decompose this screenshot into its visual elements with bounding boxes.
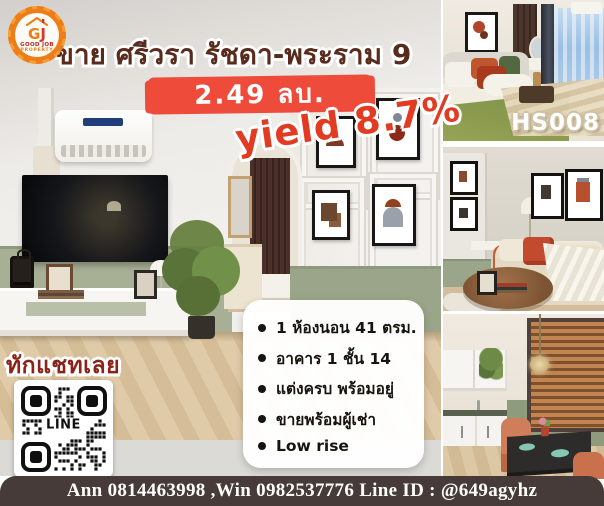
plate: [519, 443, 535, 451]
lantern-handle: [17, 249, 31, 259]
picture-frame: [465, 12, 498, 53]
badge-initials: GJ: [28, 27, 46, 42]
feature-item: แต่งครบ พร้อมอยู่: [258, 376, 416, 401]
badge-initial-j: J: [40, 25, 46, 43]
feature-item: 1 ห้องนอน 41 ตรม.: [258, 315, 416, 340]
abstract-art: [459, 171, 467, 182]
ac-display: [83, 118, 123, 126]
cabinet-handle: [461, 426, 463, 438]
brand-badge: GJ GOOD JOB PROPERTY: [8, 6, 66, 64]
feature-item: Low rise: [258, 437, 416, 455]
pendant-light: [530, 356, 549, 373]
bullet-icon: [258, 354, 266, 362]
bullet-icon: [258, 415, 266, 423]
line-logo-label: LINE: [44, 417, 83, 432]
feature-text: อาคาร 1 ชั้น 14: [276, 346, 391, 371]
plant-pot: [188, 316, 215, 339]
bullet-icon: [258, 442, 266, 450]
hanging-plant: [479, 348, 503, 384]
lamp-reflection: [107, 201, 121, 211]
faucet: [477, 400, 480, 410]
plate: [551, 449, 569, 458]
abstract-art: [473, 21, 485, 33]
television: [22, 175, 168, 262]
console-shelf-gap: [26, 302, 146, 316]
picture-frame: [450, 197, 478, 231]
book-stack: [38, 290, 84, 299]
feature-item: ขายพร้อมผู้เช่า: [258, 407, 416, 432]
bullet-icon: [258, 385, 266, 393]
chat-cta: ทักแชทเลย: [6, 348, 120, 384]
picture-frame: [312, 190, 350, 240]
features-card: 1 ห้องนอน 41 ตรม. อาคาร 1 ชั้น 14 แต่งคร…: [243, 300, 424, 468]
property-flyer: HS008: [0, 0, 604, 506]
lantern: [10, 256, 34, 288]
coffee-table: [463, 267, 553, 309]
picture-frame: [565, 169, 603, 221]
feature-text: แต่งครบ พร้อมอยู่: [276, 376, 394, 401]
picture-frame: [531, 173, 564, 219]
curtain: [541, 4, 554, 96]
abstract-art: [321, 203, 337, 221]
qr-code: LINE: [14, 380, 113, 477]
feature-text: 1 ห้องนอน 41 ตรม.: [276, 315, 417, 340]
ac-vents: [61, 145, 146, 157]
badge-face: GJ GOOD JOB PROPERTY: [15, 13, 59, 57]
picture-frame: [372, 184, 416, 246]
air-conditioner: [571, 2, 602, 14]
plant-foliage: [176, 276, 220, 316]
listing-title: ขาย ศรีวรา รัชดา-พระราม 9: [26, 33, 440, 77]
contact-bar: Ann 0814463998 ,Win 0982537776 Line ID :…: [0, 476, 604, 506]
badge-initial-g: G: [28, 25, 40, 43]
abstract-art: [459, 208, 468, 218]
photo-frame: [477, 271, 497, 295]
abstract-art: [383, 207, 403, 227]
badge-type: PROPERTY: [21, 49, 54, 54]
book-stack: [497, 283, 527, 293]
abstract-art: [385, 199, 401, 207]
abstract-art: [541, 185, 551, 199]
photo-frame: [134, 270, 157, 299]
dining-chair: [573, 452, 604, 479]
listing-code: HS008: [511, 110, 600, 136]
abstract-art: [576, 182, 590, 202]
contact-text: Ann 0814463998 ,Win 0982537776 Line ID :…: [67, 480, 537, 502]
cabinet-handle: [487, 426, 489, 438]
feature-item: อาคาร 1 ชั้น 14: [258, 346, 416, 371]
photo-sitting-area: [443, 144, 604, 311]
throw-blanket: [543, 243, 604, 301]
photo-kitchen: [443, 311, 604, 479]
features-list: 1 ห้องนอน 41 ตรม. อาคาร 1 ชั้น 14 แต่งคร…: [243, 300, 424, 468]
air-conditioner: [55, 110, 152, 162]
feature-text: Low rise: [276, 437, 349, 455]
picture-frame: [450, 161, 478, 195]
breakfast-tray: [519, 86, 554, 103]
pendant-cord: [539, 314, 541, 358]
potted-plant: [162, 220, 240, 320]
bullet-icon: [258, 324, 266, 332]
ac-pipe: [38, 88, 54, 150]
vase: [541, 426, 549, 437]
cabinet-seam: [473, 350, 475, 388]
feature-text: ขายพร้อมผู้เช่า: [276, 407, 376, 432]
